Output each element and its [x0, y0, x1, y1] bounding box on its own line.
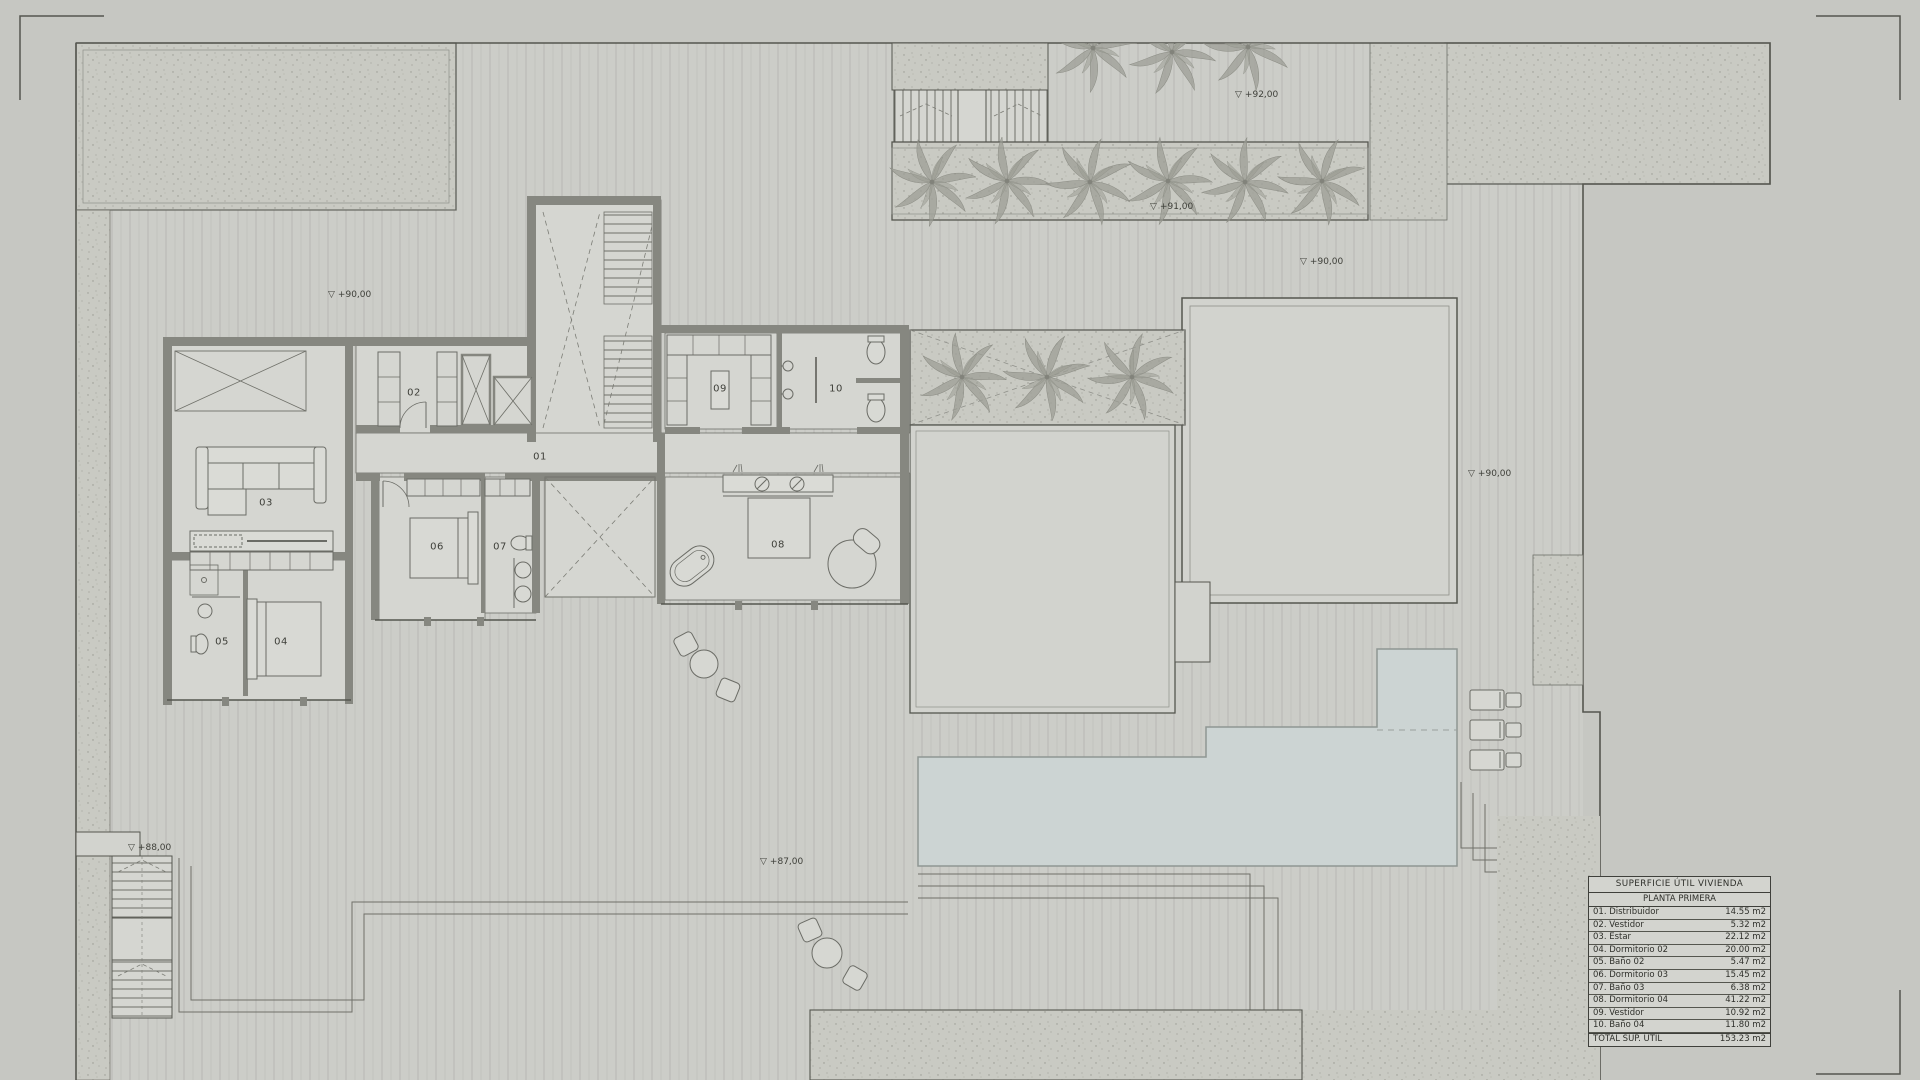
sofa-chaise [208, 489, 246, 515]
gravel-terrace-top-right [1445, 43, 1770, 184]
stair-landing-platform [892, 43, 1048, 90]
bed-headboard [247, 599, 257, 679]
room-number-03: 03 [259, 498, 273, 509]
elevation-triangle-icon: ▽ [1468, 469, 1475, 479]
sofa-seat [208, 463, 314, 489]
total-name: TOTAL SUP. ÚTIL [1589, 1034, 1720, 1046]
elevation-marker: ▽+88,00 [128, 843, 171, 853]
row-area: 10.92 m2 [1725, 1008, 1770, 1020]
table-row: 08. Dormitorio 0441.22 m2 [1589, 995, 1770, 1008]
elevation-value: +90,00 [338, 290, 371, 300]
wall-partition [481, 477, 485, 613]
stair-flight-right [986, 90, 1048, 142]
total-area: 153.23 m2 [1720, 1034, 1770, 1046]
area-table-title: SUPERFICIE ÚTIL VIVIENDA [1589, 877, 1770, 893]
room-number-08: 08 [771, 540, 785, 551]
row-name: 02. Vestidor [1589, 920, 1731, 932]
room-number-05: 05 [215, 637, 229, 648]
wall [163, 337, 172, 705]
row-area: 5.32 m2 [1731, 920, 1770, 932]
wall-partition [777, 333, 782, 427]
elevation-value: +88,00 [138, 843, 171, 853]
table-row: 06. Dormitorio 0315.45 m2 [1589, 970, 1770, 983]
elevation-triangle-icon: ▽ [1235, 90, 1242, 100]
wall [657, 433, 665, 604]
row-name: 10. Baño 04 [1589, 1020, 1725, 1032]
north-stairs [892, 43, 1048, 142]
elevation-value: +90,00 [1310, 257, 1343, 267]
tower-stair-flight [604, 336, 652, 428]
row-area: 15.45 m2 [1725, 970, 1770, 982]
table-row: 04. Dormitorio 0220.00 m2 [1589, 945, 1770, 958]
elevation-value: +87,00 [770, 857, 803, 867]
corridor-floor [356, 433, 910, 473]
room-number-07: 07 [493, 542, 507, 553]
bed-vanity-headboard [723, 475, 833, 492]
sofa-arm [314, 447, 326, 503]
elevation-triangle-icon: ▽ [1300, 257, 1307, 267]
row-name: 05. Baño 02 [1589, 957, 1731, 969]
tower-stair-flight [604, 212, 652, 304]
lower-patio-south [810, 1010, 1302, 1080]
washbasin [515, 586, 531, 602]
elevation-triangle-icon: ▽ [328, 290, 335, 300]
row-name: 04. Dormitorio 02 [1589, 945, 1725, 957]
stair-flight-left [894, 90, 958, 142]
sun-lounger [1470, 690, 1521, 710]
table-row: 02. Vestidor5.32 m2 [1589, 920, 1770, 933]
row-name: 03. Estar [1589, 932, 1725, 944]
lower-terrace [910, 425, 1175, 713]
row-name: 06. Dormitorio 03 [1589, 970, 1725, 982]
drawing-canvas: 01 02 03 04 05 06 07 08 09 10 ▽+90,00 ▽+… [0, 0, 1920, 1080]
toilet-tank [526, 536, 532, 550]
elevation-marker: ▽+87,00 [760, 857, 803, 867]
wall [665, 427, 700, 434]
sun-lounger [1470, 720, 1521, 740]
row-area: 14.55 m2 [1725, 907, 1770, 919]
gravel-strip-right-of-planter [1370, 43, 1447, 220]
elevation-value: +91,00 [1160, 202, 1193, 212]
table-row: 03. Estar22.12 m2 [1589, 932, 1770, 945]
area-table-subtitle: PLANTA PRIMERA [1589, 893, 1770, 907]
wall-partition [856, 378, 908, 383]
wardrobe [407, 479, 480, 496]
stair-landing-mid [958, 90, 986, 142]
elevation-marker: ▽+90,00 [1300, 257, 1343, 267]
wardrobe [190, 552, 333, 570]
room-number-02: 02 [407, 388, 421, 399]
elevation-marker: ▽+92,00 [1235, 90, 1278, 100]
row-name: 07. Baño 03 [1589, 983, 1731, 995]
row-area: 6.38 m2 [1731, 983, 1770, 995]
elevation-triangle-icon: ▽ [128, 843, 135, 853]
table-total-row: TOTAL SUP. ÚTIL153.23 m2 [1589, 1033, 1770, 1046]
gravel-terrace-top-left [76, 43, 456, 210]
washbasin [198, 604, 212, 618]
toilet-tank [868, 394, 884, 400]
wall-tower [653, 196, 661, 442]
elevation-marker: ▽+91,00 [1150, 202, 1193, 212]
elevation-triangle-icon: ▽ [760, 857, 767, 867]
wall [900, 325, 909, 604]
table-row: 01. Distribuidor14.55 m2 [1589, 907, 1770, 920]
wall [345, 337, 353, 560]
gravel-strip-east [1533, 555, 1583, 685]
row-area: 5.47 m2 [1731, 957, 1770, 969]
wardrobe [485, 479, 530, 496]
bed-headboard [468, 512, 478, 584]
row-name: 08. Dormitorio 04 [1589, 995, 1725, 1007]
wall [857, 427, 908, 434]
washbasin [515, 562, 531, 578]
elevation-triangle-icon: ▽ [1150, 202, 1157, 212]
table-row: 07. Baño 036.38 m2 [1589, 983, 1770, 996]
lower-garden-south [1302, 1010, 1600, 1080]
wall [345, 556, 353, 704]
row-area: 22.12 m2 [1725, 932, 1770, 944]
elevation-marker: ▽+90,00 [328, 290, 371, 300]
toilet-tank [191, 636, 196, 652]
room-number-10: 10 [829, 384, 843, 395]
terrace-connector [1175, 582, 1210, 662]
sun-lounger [1470, 750, 1521, 770]
elevation-marker: ▽+90,00 [1468, 469, 1511, 479]
sofa-arm [196, 447, 208, 509]
room-number-04: 04 [274, 637, 288, 648]
wall [532, 473, 540, 613]
elevation-value: +90,00 [1478, 469, 1511, 479]
table-row: 10. Baño 0411.80 m2 [1589, 1020, 1770, 1033]
table-row: 05. Baño 025.47 m2 [1589, 957, 1770, 970]
row-name: 09. Vestidor [1589, 1008, 1725, 1020]
row-name: 01. Distribuidor [1589, 907, 1725, 919]
corner-tick-top-right [1816, 16, 1900, 100]
room-number-01: 01 [533, 452, 547, 463]
gravel-strip-left-edge [76, 210, 110, 1080]
roof-terrace-large [1182, 298, 1457, 603]
room-number-09: 09 [713, 384, 727, 395]
table-row: 09. Vestidor10.92 m2 [1589, 1008, 1770, 1021]
toilet-tank [868, 336, 884, 342]
row-area: 41.22 m2 [1725, 995, 1770, 1007]
sofa-back [201, 447, 321, 463]
elevation-value: +92,00 [1245, 90, 1278, 100]
toilet [867, 398, 885, 422]
row-area: 20.00 m2 [1725, 945, 1770, 957]
corner-tick-bottom-right [1816, 990, 1900, 1074]
row-area: 11.80 m2 [1725, 1020, 1770, 1032]
wall-tower [527, 196, 661, 205]
wall [742, 427, 790, 434]
toilet [867, 340, 885, 364]
area-table: SUPERFICIE ÚTIL VIVIENDA PLANTA PRIMERA … [1588, 876, 1771, 1047]
room-number-06: 06 [430, 542, 444, 553]
wall [371, 473, 379, 620]
wall [657, 325, 909, 333]
bed [257, 602, 321, 676]
